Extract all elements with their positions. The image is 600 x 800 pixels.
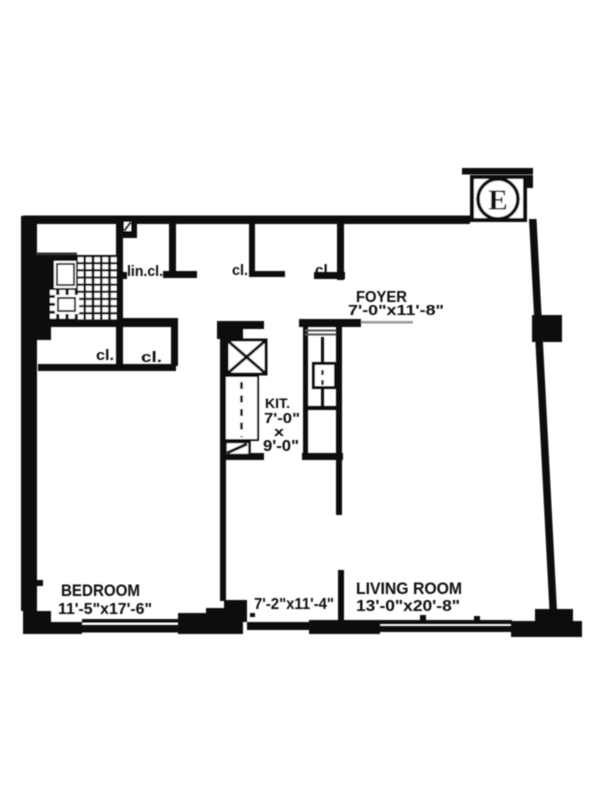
svg-text:cl.: cl.	[141, 349, 162, 366]
svg-text:7'-2"x11'-4": 7'-2"x11'-4"	[254, 596, 334, 613]
svg-text:13'-0"x20'-8": 13'-0"x20'-8"	[356, 598, 460, 615]
svg-text:BEDROOM: BEDROOM	[61, 581, 140, 600]
svg-text:cl.: cl.	[315, 262, 332, 279]
svg-text:lin.cl.: lin.cl.	[127, 263, 163, 280]
svg-text:11'-5"x17'-6": 11'-5"x17'-6"	[58, 601, 152, 618]
svg-text:cl.: cl.	[96, 347, 114, 364]
svg-text:cl.: cl.	[232, 262, 248, 279]
svg-text:LIVING ROOM: LIVING ROOM	[356, 579, 462, 598]
svg-text:E: E	[488, 185, 507, 217]
svg-text:7'-0"x11'-8": 7'-0"x11'-8"	[348, 302, 444, 319]
svg-text:KIT.: KIT.	[265, 395, 290, 411]
svg-text:x: x	[274, 424, 285, 439]
svg-text:9'-0": 9'-0"	[263, 438, 299, 455]
